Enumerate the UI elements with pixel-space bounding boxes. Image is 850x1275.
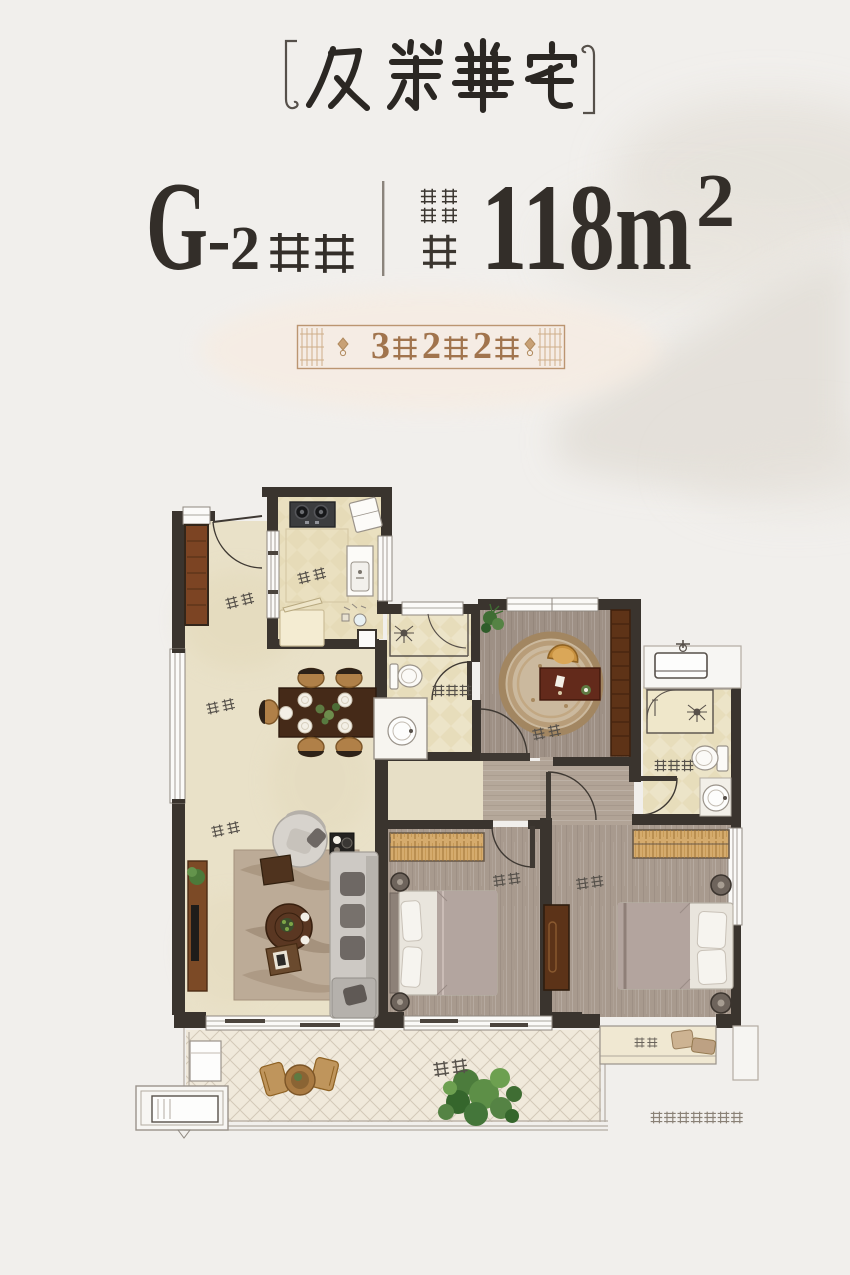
- svg-text:2: 2: [696, 159, 735, 243]
- svg-text:2: 2: [230, 215, 260, 283]
- svg-text:G: G: [146, 157, 208, 297]
- svg-text:2: 2: [422, 325, 441, 367]
- svg-text:118m: 118m: [481, 159, 692, 296]
- svg-text:3: 3: [371, 325, 390, 367]
- svg-text:2: 2: [473, 325, 492, 367]
